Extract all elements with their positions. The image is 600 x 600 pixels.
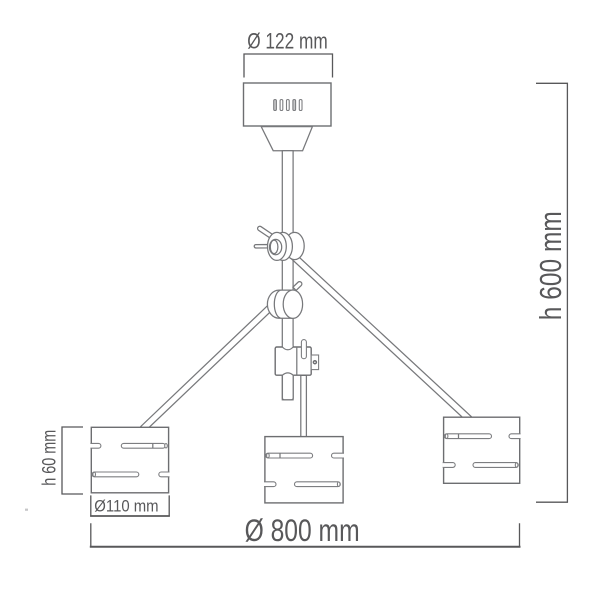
svg-text:Ø110 mm: Ø110 mm — [94, 496, 158, 515]
svg-text:h 600 mm: h 600 mm — [533, 211, 568, 320]
svg-text:Ø 122 mm: Ø 122 mm — [247, 29, 328, 54]
svg-text:Ø 800 mm: Ø 800 mm — [245, 512, 360, 548]
svg-text:h 60 mm: h 60 mm — [39, 430, 60, 486]
